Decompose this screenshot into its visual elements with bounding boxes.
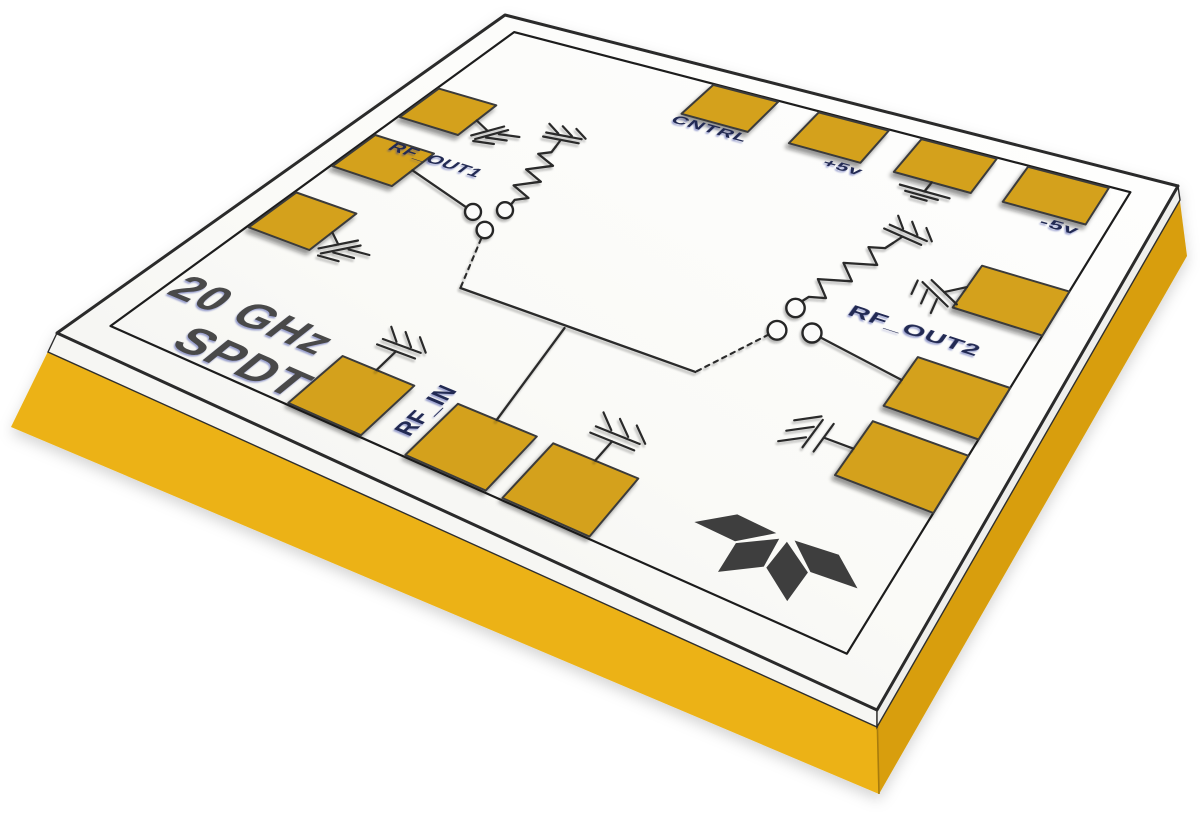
switch-arm-left[interactable] [477,222,493,238]
die-layers: RF_OUT1RF_OUT2RF_INCNTRL+5v-5v20 GHzSPDT [11,15,1187,794]
page-background: RF_OUT1RF_OUT2RF_INCNTRL+5v-5v20 GHzSPDT [0,0,1200,832]
switch-contact-out1[interactable] [465,204,481,220]
switch-arm-right[interactable] [768,321,787,340]
spdt-mmic-3d-render: RF_OUT1RF_OUT2RF_INCNTRL+5v-5v20 GHzSPDT [0,0,1200,832]
switch-contact-res-left[interactable] [497,202,513,218]
switch-contact-out2[interactable] [803,324,822,343]
die-body [11,15,1187,794]
switch-contact-res-right[interactable] [786,299,804,317]
